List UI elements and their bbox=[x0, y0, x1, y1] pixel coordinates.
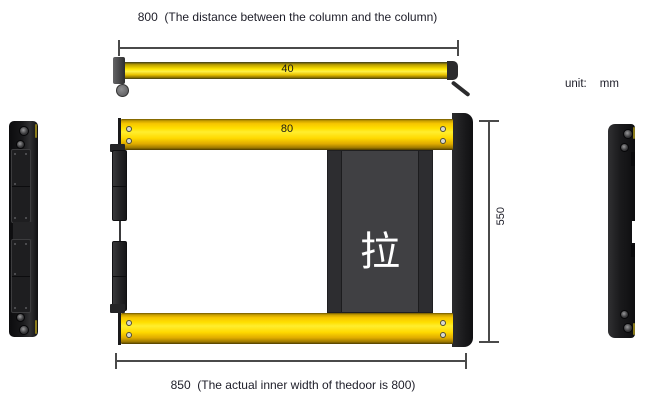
rail-width-80-label: 80 bbox=[121, 123, 453, 135]
screw-dot bbox=[14, 243, 16, 245]
hinge-block-lower bbox=[112, 241, 127, 311]
screw-dot bbox=[25, 307, 27, 309]
screw-dot bbox=[440, 138, 446, 144]
top-view-hinge-pin bbox=[116, 84, 129, 97]
bolt-icon bbox=[19, 325, 29, 335]
top-view-hinge-block bbox=[113, 57, 125, 84]
screw-dot bbox=[25, 217, 27, 219]
bolt-icon bbox=[623, 323, 633, 333]
screw-dot bbox=[126, 332, 132, 338]
dimension-550-line bbox=[488, 120, 490, 343]
gate-right-post bbox=[452, 113, 473, 347]
top-view-end-cap bbox=[447, 61, 458, 80]
dimension-550-label: 550 bbox=[495, 207, 507, 225]
hinge-plate bbox=[11, 239, 31, 313]
screw-dot bbox=[14, 153, 16, 155]
center-pull-panel: 拉 bbox=[327, 150, 433, 313]
top-view-arm-bar: 40 bbox=[121, 62, 454, 79]
left-column-side-view bbox=[9, 121, 38, 337]
screw-dot bbox=[14, 273, 16, 275]
screw-dot bbox=[126, 138, 132, 144]
column-edge-accent bbox=[633, 127, 635, 139]
hinge-bracket-bottom bbox=[110, 304, 125, 313]
hinge-rod bbox=[119, 221, 121, 241]
column-edge-accent bbox=[35, 320, 37, 334]
screw-dot bbox=[14, 217, 16, 219]
bolt-icon bbox=[620, 143, 629, 152]
column-edge-accent bbox=[35, 124, 37, 138]
screw-dot bbox=[25, 243, 27, 245]
bolt-icon bbox=[16, 140, 25, 149]
screw-dot bbox=[126, 320, 132, 326]
bar-width-40-label: 40 bbox=[121, 63, 454, 75]
top-view-handle bbox=[451, 80, 471, 97]
latch-notch bbox=[631, 245, 635, 257]
bolt-icon bbox=[19, 126, 29, 136]
screw-dot bbox=[14, 183, 16, 185]
gate-top-rail: 80 bbox=[121, 119, 453, 150]
hinge-plate bbox=[11, 149, 31, 223]
screw-dot bbox=[126, 126, 132, 132]
dimension-850-label: 850 (The actual inner width of thedoor i… bbox=[100, 378, 486, 392]
bolt-icon bbox=[623, 129, 633, 139]
screw-dot bbox=[25, 153, 27, 155]
gate-dimension-diagram: 800 (The distance between the column and… bbox=[0, 0, 648, 409]
hinge-connector bbox=[13, 222, 33, 239]
screw-dot bbox=[440, 332, 446, 338]
pull-glyph: 拉 bbox=[328, 232, 432, 272]
unit-note: unit: mm bbox=[565, 78, 619, 90]
unit-value: mm bbox=[600, 78, 619, 90]
gate-bottom-rail bbox=[121, 313, 453, 344]
latch-slot bbox=[632, 221, 635, 243]
screw-dot bbox=[440, 126, 446, 132]
dimension-850-line bbox=[115, 360, 467, 362]
hinge-block-upper bbox=[112, 150, 127, 221]
column-edge-accent bbox=[633, 323, 635, 335]
bolt-icon bbox=[16, 313, 25, 322]
dimension-800-line bbox=[118, 47, 459, 49]
right-column-side-view bbox=[608, 124, 635, 338]
rail-end-cap bbox=[118, 312, 121, 345]
dimension-800-label: 800 (The distance between the column and… bbox=[100, 10, 475, 24]
screw-dot bbox=[440, 320, 446, 326]
unit-label: unit: bbox=[565, 78, 587, 90]
bolt-icon bbox=[620, 310, 629, 319]
screw-dot bbox=[14, 307, 16, 309]
latch-notch bbox=[631, 152, 635, 166]
